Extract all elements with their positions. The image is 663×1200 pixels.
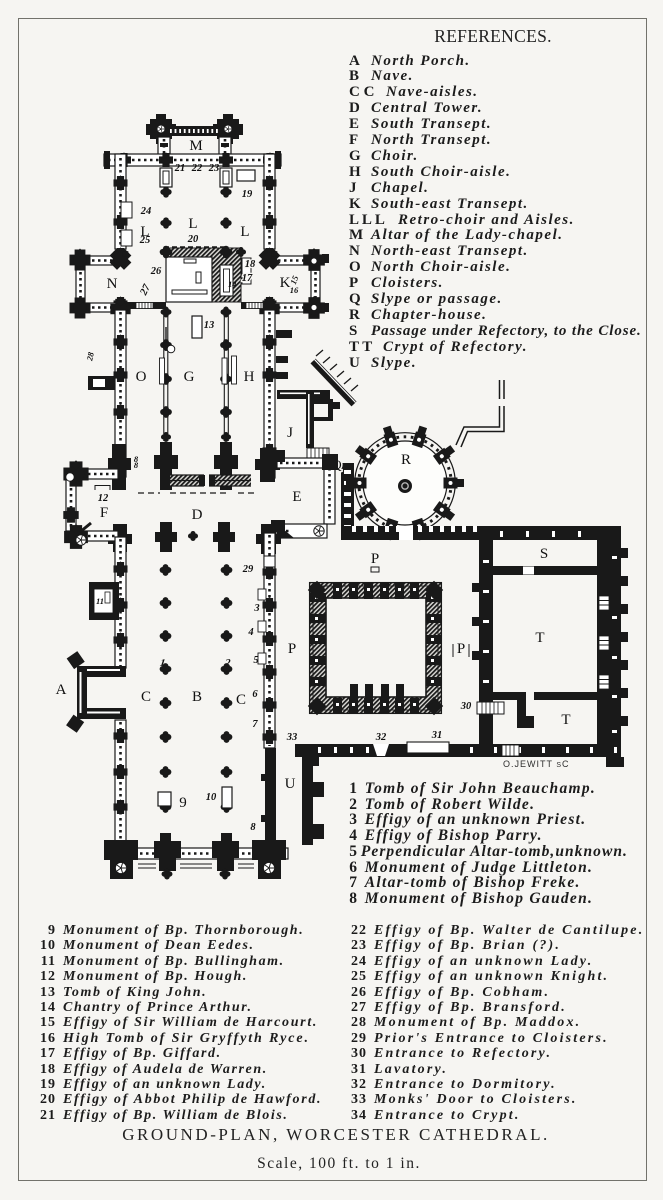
svg-text:D: D — [192, 507, 203, 523]
svg-text:15: 15 — [288, 274, 301, 286]
svg-text:L: L — [188, 216, 197, 232]
svg-text:8: 8 — [250, 822, 256, 833]
svg-text:G: G — [184, 369, 195, 385]
svg-text:22: 22 — [191, 163, 203, 174]
svg-text:C: C — [236, 692, 246, 708]
svg-text:31: 31 — [431, 730, 443, 741]
svg-text:6: 6 — [252, 689, 258, 700]
svg-text:33: 33 — [286, 732, 298, 743]
svg-text:T: T — [535, 630, 544, 646]
svg-text:21: 21 — [174, 163, 186, 174]
svg-text:M: M — [189, 138, 202, 154]
svg-text:18: 18 — [245, 259, 256, 270]
svg-text:20: 20 — [187, 234, 199, 245]
svg-text:T: T — [561, 712, 570, 728]
svg-text:A: A — [56, 682, 67, 698]
svg-text:10: 10 — [206, 792, 217, 803]
svg-text:24: 24 — [140, 206, 152, 217]
svg-text:3: 3 — [253, 603, 259, 614]
svg-text:12: 12 — [98, 493, 109, 504]
svg-text:S: S — [540, 546, 548, 562]
svg-text:26: 26 — [150, 266, 162, 277]
svg-text:29: 29 — [242, 564, 254, 575]
svg-text:13: 13 — [204, 320, 215, 331]
svg-text:28: 28 — [84, 350, 96, 362]
svg-text:O: O — [136, 369, 147, 385]
svg-text:N: N — [107, 276, 118, 292]
svg-text:7: 7 — [252, 719, 258, 730]
svg-text:5: 5 — [253, 655, 258, 666]
svg-text:8: 8 — [134, 460, 139, 470]
svg-text:14: 14 — [228, 279, 237, 289]
svg-text:P: P — [457, 641, 465, 657]
svg-text:L: L — [240, 224, 249, 240]
svg-text:30: 30 — [460, 701, 472, 712]
svg-text:23: 23 — [208, 163, 220, 174]
svg-text:E: E — [292, 489, 301, 505]
svg-text:P: P — [288, 641, 296, 657]
svg-text:11: 11 — [96, 596, 104, 606]
svg-text:H: H — [244, 369, 255, 385]
svg-text:27: 27 — [138, 282, 153, 298]
svg-text:J: J — [287, 425, 293, 441]
svg-text:25: 25 — [139, 235, 151, 246]
svg-text:32: 32 — [375, 732, 387, 743]
svg-text:C: C — [141, 689, 151, 705]
svg-text:9: 9 — [179, 795, 187, 811]
svg-text:4: 4 — [247, 627, 253, 638]
svg-text:F: F — [100, 505, 108, 521]
svg-text:B: B — [192, 689, 202, 705]
svg-text:P: P — [371, 551, 379, 567]
svg-text:16: 16 — [290, 285, 299, 295]
svg-text:19: 19 — [242, 189, 253, 200]
svg-text:R: R — [401, 452, 411, 468]
svg-text:U: U — [285, 776, 296, 792]
svg-text:17: 17 — [242, 273, 253, 284]
